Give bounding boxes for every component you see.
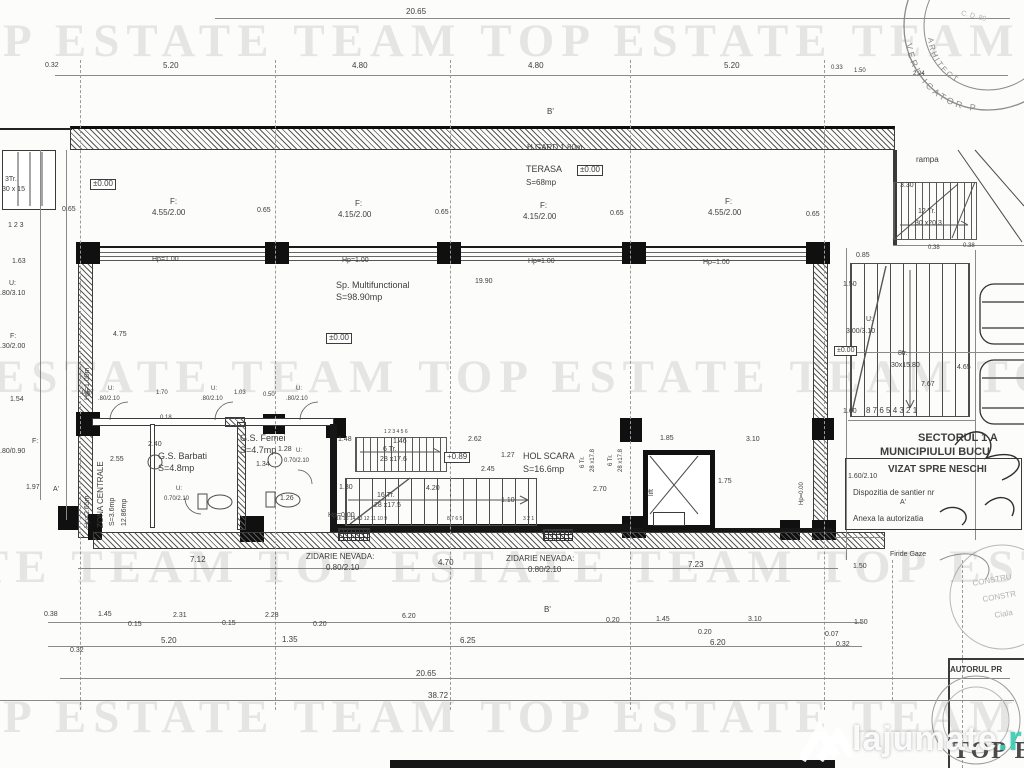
dim-label: 20.65 xyxy=(416,670,436,679)
dim-label: Firide Gaze xyxy=(890,551,926,559)
dim-label: .80/0.90 xyxy=(0,448,25,456)
label-h-gard: H GARD 1.80m xyxy=(527,144,583,153)
dim-label: 0.67 xyxy=(82,390,94,397)
stamp-text-dispozitia: Dispozitia de santier nr xyxy=(853,489,934,498)
dim-label: F: xyxy=(10,333,16,341)
dim-label: U: xyxy=(211,386,217,393)
dim-label: 0.32 xyxy=(70,647,84,655)
dim-label: 1.10 xyxy=(501,497,515,505)
dim-label: S=3.6mp xyxy=(109,498,117,526)
dim-label: 20.65 xyxy=(406,8,426,17)
dim-label: U: xyxy=(9,280,16,288)
dim-label: 4.55/2.00 xyxy=(152,209,185,218)
dim-label: 6 Tr. xyxy=(608,454,615,466)
dim-label: 4.65 xyxy=(957,364,971,372)
dim-label: 2.40 xyxy=(148,441,162,449)
dim-label: CONSTR xyxy=(982,590,1017,605)
dim-label: Hp=1.00 xyxy=(342,257,369,265)
dim-label: 12 Tr. xyxy=(918,208,936,216)
section-marker-b: B' xyxy=(544,606,551,615)
dim-label: Ciala xyxy=(994,609,1013,621)
dim-label: 0.65 xyxy=(610,210,624,218)
dim-label: 0.70/2.10 xyxy=(164,496,189,503)
dim-label: 8tr. xyxy=(898,350,908,358)
dim-label: 4.55/2.00 xyxy=(708,209,741,218)
dim-label: 30 x20.3 xyxy=(915,220,942,228)
dim-label: 4.75 xyxy=(113,331,127,339)
dim-label: 5.20 xyxy=(724,62,740,71)
stamp-text-anexa: Anexa la autorizatia xyxy=(853,515,923,524)
dim-label: F: xyxy=(725,198,732,207)
dim-label: 1.60/2.10 xyxy=(848,473,877,481)
dim-label: 1.03 xyxy=(234,390,246,397)
dim-label: 2.62 xyxy=(468,436,482,444)
dim-label: .80/2.10 xyxy=(98,396,120,403)
dim-label: 1.50 xyxy=(854,68,866,75)
dim-label: 0.50 xyxy=(263,392,275,399)
dim-label: 4.80 xyxy=(528,62,544,71)
dim-label: 0.20 xyxy=(313,621,327,629)
room-label-rampa: rampa xyxy=(916,156,939,165)
room-label-lift: lift xyxy=(648,489,656,496)
wall-note-zidarie: ZIDARIE NEVADA: xyxy=(506,555,574,564)
dim-label: 3.30 xyxy=(900,182,914,190)
stair-tread-numbers: 8 7 6 5 4 3 2 1 xyxy=(866,407,917,416)
dim-label: 4.15/2.00 xyxy=(523,213,556,222)
site-name: lajumate xyxy=(852,720,998,758)
dim-label: 0.33 xyxy=(831,65,843,72)
room-label-gs-femei: G.S. Femei xyxy=(240,434,286,444)
dim-label: 3Tr. xyxy=(5,176,17,184)
lajumate-logo-icon xyxy=(800,718,852,762)
dim-label: 1.28 xyxy=(278,446,292,454)
dim-label: 0.65 xyxy=(257,207,271,215)
stamp-text-autorul: AUTORUL PR xyxy=(950,666,1002,675)
grid-axis-numbers: 1 2 3 xyxy=(8,222,24,230)
dim-label: 0.65 xyxy=(806,211,820,219)
dim-label: U: xyxy=(176,486,182,493)
dim-label: 1.45 xyxy=(656,616,670,624)
site-tld: .ro xyxy=(998,720,1024,758)
dim-label: 19.90 xyxy=(475,278,493,286)
dim-label: 1.35 xyxy=(282,636,298,645)
dim-label: 1.26 xyxy=(280,495,294,503)
dim-label: 4.80 xyxy=(352,62,368,71)
section-marker-a: A' xyxy=(53,486,59,494)
dim-label: .80/2.10 xyxy=(201,396,223,403)
dim-label: 0.38 xyxy=(963,243,975,250)
dim-label: 0.65 xyxy=(435,209,449,217)
dim-label: S=68mp xyxy=(526,179,556,188)
dim-label: A' xyxy=(900,499,906,507)
dim-label: S=4.7mp xyxy=(240,446,276,456)
dim-label: 2.55 xyxy=(110,456,124,464)
dim-label: .80/3.10 xyxy=(0,290,25,298)
dim-label: 7.12 xyxy=(190,556,206,565)
dim-label: 3.10 xyxy=(748,616,762,624)
dim-label: 1.50 xyxy=(853,563,867,571)
room-label-zona-centrala: ZONA CENTRALE xyxy=(97,461,106,528)
dim-label: C. D. 89 xyxy=(960,10,987,24)
room-label-gs-barbati: G.S. Barbati xyxy=(158,452,207,462)
dim-label: Hp=2.65m xyxy=(84,496,92,529)
dim-label: 2.28 xyxy=(265,612,279,620)
dim-label: 5.20 xyxy=(163,62,179,71)
dim-label: ±0.00 xyxy=(326,333,352,344)
room-label-hol-scara: HOL SCARA xyxy=(523,452,575,462)
dim-label: 0.18 xyxy=(160,415,172,422)
dim-label: Hp=1.00 xyxy=(528,258,555,266)
dim-label: F: xyxy=(355,200,362,209)
site-watermark-text: lajumate.ro xyxy=(852,720,1024,759)
dim-label: 30x15.80 xyxy=(891,362,920,370)
dim-label: .30/2.00 xyxy=(0,343,25,351)
dim-label: Hp=0.00 xyxy=(799,482,806,505)
dim-label: CONSTRU xyxy=(972,573,1012,589)
dim-label: 0.15 xyxy=(222,620,236,628)
dim-label: U: xyxy=(866,316,873,324)
dim-label: 0.07 xyxy=(825,631,839,639)
dim-label: 0.80/2.10 xyxy=(326,564,359,573)
site-watermark: lajumate.ro xyxy=(800,712,1024,768)
dim-label: 1.70 xyxy=(156,390,168,397)
dim-label: F: xyxy=(540,202,547,211)
dim-label: 0.70/2.10 xyxy=(284,458,309,465)
dim-label: ±0.00 xyxy=(577,165,603,176)
dim-label: 28 x17.8 xyxy=(618,449,625,472)
dim-label: 4.20 xyxy=(426,485,440,493)
dim-label: 0.32 xyxy=(836,641,850,649)
dim-label: 5.20 xyxy=(161,637,177,646)
dim-label: 6 Tr. xyxy=(383,446,397,454)
dim-label: 8 7 6 5 xyxy=(447,517,462,523)
dim-label: 1.54 xyxy=(10,396,24,404)
dim-label: 12.86mp xyxy=(121,499,129,526)
dim-label: U: xyxy=(296,448,302,455)
wall-note-zidarie: ZIDARIE NEVADA: xyxy=(306,553,374,562)
dim-label: 0.38 xyxy=(44,611,58,619)
dim-label: U: xyxy=(108,386,114,393)
dim-label: 0.15 xyxy=(128,621,142,629)
dim-label: 1.60 xyxy=(843,408,857,416)
dim-label: 16 Tr. xyxy=(377,492,395,500)
stamp-text-municipiu: MUNICIPIULUI BUCU xyxy=(880,446,990,458)
floor-plan-scan: TOP ESTATE TEAM TOP ESTATE TEAM TOP ESTA… xyxy=(0,0,1024,768)
dim-label: 2.70 xyxy=(593,486,607,494)
dim-label: S=16.6mp xyxy=(523,465,564,475)
dim-label: 1.50 xyxy=(843,281,857,289)
dim-label: 0.20 xyxy=(606,617,620,625)
dim-label: 4.15/2.00 xyxy=(338,211,371,220)
dim-label: 3.10 xyxy=(746,436,760,444)
dim-label: 3 2 1 xyxy=(523,517,534,523)
dim-label: S=98.90mp xyxy=(336,293,382,303)
dim-label: ±0.00 xyxy=(90,179,116,190)
stamp-text-vizat: VIZAT SPRE NESCHI xyxy=(888,464,987,475)
dim-label: U: xyxy=(296,386,302,393)
dim-label: 1.75 xyxy=(718,478,732,486)
dim-label: 1.34 xyxy=(256,461,270,469)
dim-label: 1.46 xyxy=(393,438,407,446)
dim-label: F: xyxy=(32,438,38,446)
room-label-terasa: TERASA xyxy=(526,165,562,175)
dim-label: 3.00/3.10 xyxy=(846,328,875,336)
dim-label: S=4.8mp xyxy=(158,464,194,474)
dim-label: 2.31 xyxy=(173,612,187,620)
dim-label: 1.85 xyxy=(660,435,674,443)
dim-label: 0.80/2.10 xyxy=(528,566,561,575)
dim-label: 1.27 xyxy=(501,452,515,460)
dim-label: 1.50 xyxy=(854,619,868,627)
dim-label: 6.25 xyxy=(460,637,476,646)
dim-label: 0.85 xyxy=(856,252,870,260)
dim-label: 6.20 xyxy=(710,639,726,648)
dim-label: 6 Tr. xyxy=(580,456,587,468)
dim-label: 1.45 xyxy=(98,611,112,619)
dim-label: 0.32 xyxy=(45,62,59,70)
dim-label: 1.97 xyxy=(26,484,40,492)
dim-label: 2.24 xyxy=(913,71,925,78)
dim-label: +0.89 xyxy=(444,452,470,463)
dim-label: ±0.00 xyxy=(834,346,857,356)
dim-label: 28 x17.8 xyxy=(590,449,597,472)
dim-label: Hp=1.00 xyxy=(703,259,730,267)
dim-label: 4.70 xyxy=(438,559,454,568)
dim-label: 1.63 xyxy=(12,258,26,266)
dim-label: 1.48 xyxy=(338,436,352,444)
dim-label: 2.45 xyxy=(481,466,495,474)
dim-label: 7.67 xyxy=(921,381,935,389)
dim-label: 38.72 xyxy=(428,692,448,701)
dim-label: 1.30 xyxy=(339,484,353,492)
dim-label: 28 x17.6 xyxy=(380,456,407,464)
stamp-text-sectorul: SECTORUL 1 A xyxy=(918,432,998,444)
dim-label: 28 x17.5 xyxy=(374,502,401,510)
dim-label: 30 x 15 xyxy=(2,186,25,194)
dim-label: 0.38 xyxy=(928,245,940,252)
dim-label: Hp=1.00 xyxy=(152,256,179,264)
dim-label: F: xyxy=(170,198,177,207)
section-marker-b: B' xyxy=(547,108,554,117)
stair-tread-numbers: 16 15 14 13 12 11 10 9 xyxy=(336,517,387,523)
room-label-multifunctional: Sp. Multifunctional xyxy=(336,281,410,291)
dim-label: 0.20 xyxy=(698,629,712,637)
dim-label: 1 2 3 4 5 6 xyxy=(384,430,408,436)
dim-label: 7.23 xyxy=(688,561,704,570)
dim-label: 6.20 xyxy=(402,613,416,621)
dim-label: .80/2.10 xyxy=(286,396,308,403)
dim-label: 0.65 xyxy=(62,206,76,214)
label-layer: 20.650.325.204.804.805.200.331.502.24B'H… xyxy=(0,0,1024,768)
